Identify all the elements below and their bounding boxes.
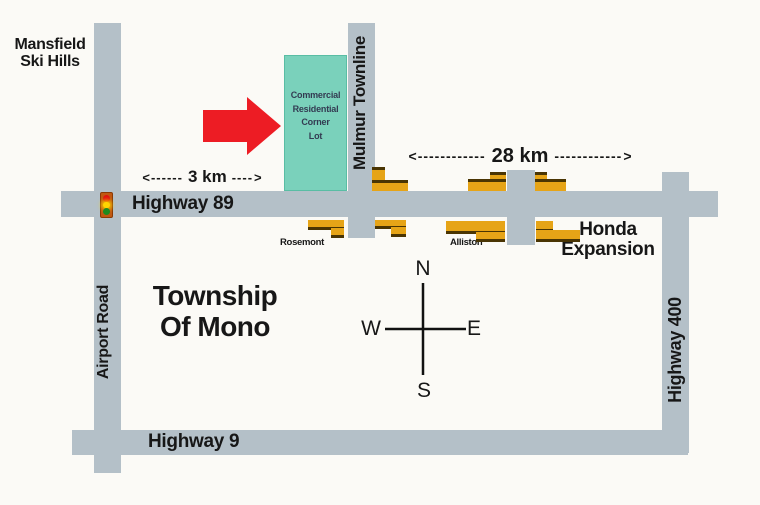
airport-road-label: Airport Road: [95, 272, 115, 392]
building-alliston: [476, 232, 505, 242]
honda-line-2: Expansion: [552, 240, 664, 260]
compass-west-label: W: [361, 317, 381, 341]
building-honda: [536, 230, 580, 242]
commercial-lot-label: Commercial Residential Corner Lot: [285, 89, 346, 143]
compass-east-label: E: [467, 317, 481, 341]
highway-400-label: Highway 400: [665, 285, 685, 415]
lot-line-4: Lot: [285, 130, 346, 144]
distance-marker-3km: < ------ 3 km ---- >: [124, 166, 280, 188]
arrow-dashes: ------: [151, 170, 183, 185]
traffic-light-yellow: [103, 202, 110, 209]
road-airport: [94, 23, 121, 473]
lot-line-3: Corner: [285, 116, 346, 130]
traffic-light-icon: [100, 192, 113, 218]
building-north-2: [468, 179, 506, 191]
compass-north-label: N: [415, 257, 430, 281]
traffic-light-green: [103, 208, 110, 215]
arrow-close: >: [254, 170, 262, 185]
highway-89-label: Highway 89: [132, 193, 234, 215]
building-south-2: [391, 227, 406, 237]
lot-line-2: Residential: [285, 103, 346, 117]
arrow-open: <: [142, 170, 150, 185]
township-line-2: Of Mono: [142, 311, 288, 342]
mansfield-line-2: Ski Hills: [6, 53, 94, 70]
traffic-light-red: [103, 195, 110, 202]
compass-south-label: S: [417, 379, 431, 403]
commercial-lot: Commercial Residential Corner Lot: [284, 55, 347, 191]
lot-line-1: Commercial: [285, 89, 346, 103]
arrow-close: >: [623, 148, 631, 164]
distance-28km-label: 28 km: [492, 145, 549, 168]
township-of-mono-label: Township Of Mono: [142, 280, 288, 342]
distance-marker-28km: < ------------ 28 km ------------ >: [375, 143, 665, 169]
distance-3km-label: 3 km: [188, 167, 227, 187]
arrow-dashes: ----: [232, 170, 253, 185]
mulmur-townline-label: Mulmur Townline: [350, 28, 372, 178]
arrow-open: <: [409, 148, 417, 164]
building-north-3: [535, 179, 566, 191]
arrow-dashes: ------------: [554, 148, 622, 164]
mansfield-line-1: Mansfield: [6, 36, 94, 53]
mansfield-ski-hills-label: Mansfield Ski Hills: [6, 36, 94, 70]
red-arrow-icon: [200, 95, 284, 157]
building-rosemont: [331, 228, 344, 238]
arrow-dashes: ------------: [418, 148, 486, 164]
compass-icon: [380, 276, 470, 380]
rosemont-label: Rosemont: [280, 237, 324, 248]
map-canvas: Commercial Residential Corner Lot < ----…: [0, 0, 760, 505]
building-north-1: [372, 180, 408, 191]
township-line-1: Township: [142, 280, 288, 311]
highway-9-label: Highway 9: [148, 431, 239, 453]
